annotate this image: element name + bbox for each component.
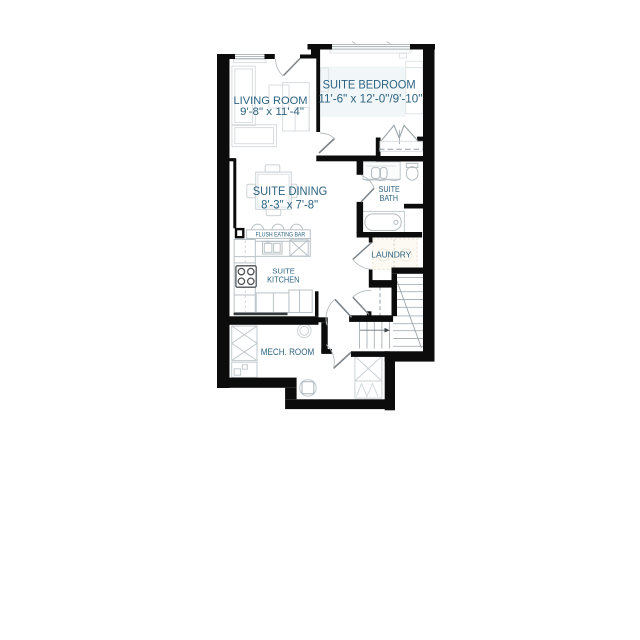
svg-text:8'-3" x 7'-8": 8'-3" x 7'-8" — [261, 199, 318, 212]
svg-text:SUITE BEDROOM: SUITE BEDROOM — [323, 77, 416, 91]
svg-text:FLUSH EATING BAR: FLUSH EATING BAR — [256, 232, 306, 239]
svg-text:MECH. ROOM: MECH. ROOM — [261, 347, 315, 357]
svg-text:11'-6" x 12'-0"/9'-10": 11'-6" x 12'-0"/9'-10" — [318, 92, 422, 106]
svg-text:KITCHEN: KITCHEN — [267, 276, 300, 285]
svg-text:LAUNDRY: LAUNDRY — [371, 250, 412, 259]
svg-text:BATH: BATH — [380, 194, 398, 203]
svg-text:9'-8" x 11'-4": 9'-8" x 11'-4" — [240, 106, 304, 118]
svg-text:SUITE: SUITE — [272, 266, 295, 275]
svg-text:SUITE: SUITE — [379, 184, 401, 194]
svg-text:LIVING ROOM: LIVING ROOM — [234, 95, 308, 107]
svg-text:SUITE DINING: SUITE DINING — [253, 184, 328, 198]
